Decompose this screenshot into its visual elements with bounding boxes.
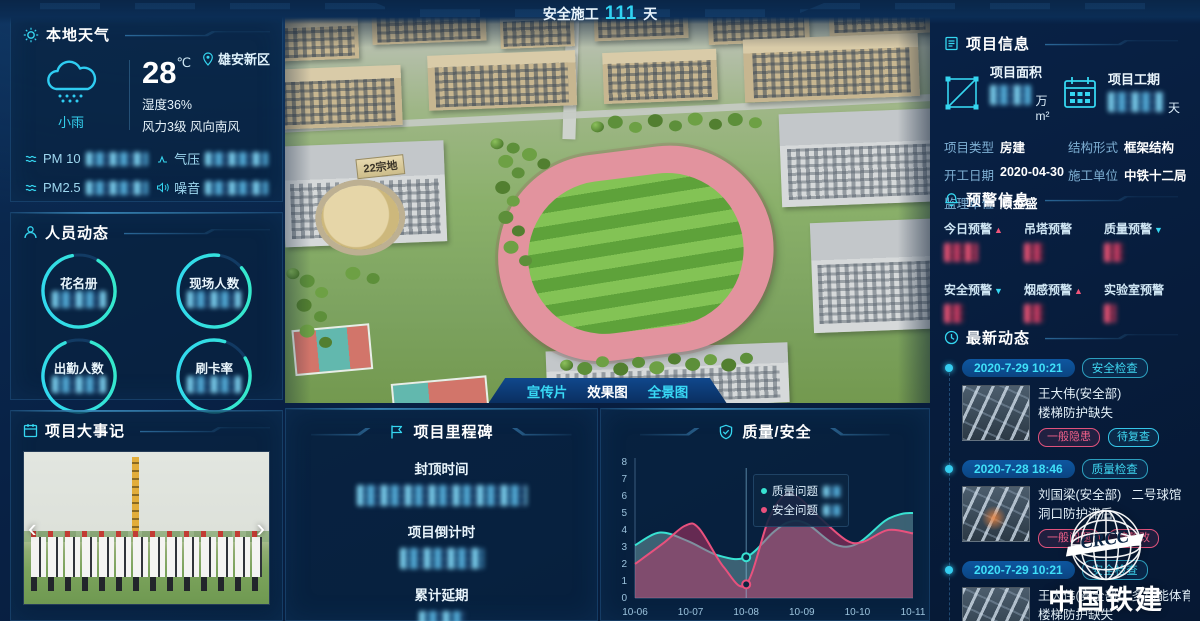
field-structure: 结构形式框架结构 xyxy=(1068,137,1187,156)
metric-label: 噪音 xyxy=(174,178,200,197)
svg-text:6: 6 xyxy=(621,491,627,502)
basketball-court xyxy=(391,375,490,403)
trend-down-icon: ▼ xyxy=(994,286,1003,296)
crcc-logo: CRCC 中国铁建 xyxy=(1022,503,1190,617)
milestones-panel: 项目里程碑 封顶时间 项目倒计时 累计延期 xyxy=(285,408,598,621)
events-title: 项目大事记 xyxy=(45,420,125,441)
legend-dot-quality xyxy=(761,488,767,494)
legend-quality: 质量问题 xyxy=(772,483,818,499)
warning-label: 实验室预警 xyxy=(1104,283,1164,297)
svg-text:7: 7 xyxy=(621,474,627,485)
site-3d-render: 22宗地 宣传片 效果图 全景图 xyxy=(285,8,930,403)
blurred-value xyxy=(400,548,484,569)
clock-icon xyxy=(944,330,959,345)
warning-label: 吊塔预警 xyxy=(1024,222,1072,236)
warning-label: 今日预警 xyxy=(944,222,992,236)
bell-icon xyxy=(944,192,959,207)
blurred-value xyxy=(86,152,149,166)
stat-project-area: 项目面积 万m² xyxy=(942,62,1060,123)
svg-text:10-10: 10-10 xyxy=(845,607,871,618)
trees xyxy=(490,138,503,149)
blurred-value xyxy=(823,505,841,516)
svg-text:2: 2 xyxy=(621,559,627,570)
shield-check-icon xyxy=(718,424,734,440)
project-info-panel: 项目信息 项目面积 万m² 项目工期 天 项目类型房建 结构形式框架结构 开工日… xyxy=(932,24,1190,174)
warning-label: 烟感预警 xyxy=(1024,283,1072,297)
safe-label: 安全施工 xyxy=(543,4,599,24)
project-info-title: 项目信息 xyxy=(966,33,1030,54)
milestone-delay: 累计延期 xyxy=(286,584,597,621)
building xyxy=(602,49,718,104)
personnel-panel: 人员动态 花名册 现场人数 出勤人数 刷卡率 xyxy=(10,212,283,400)
blurred-value xyxy=(357,485,527,506)
people-row xyxy=(31,537,261,577)
blurred-value xyxy=(1024,243,1044,262)
header-ornament xyxy=(640,428,710,436)
running-track xyxy=(486,133,786,373)
blurred-value xyxy=(187,291,241,308)
updates-title: 最新动态 xyxy=(966,327,1030,348)
pm-icon xyxy=(25,183,38,193)
warning-label: 安全预警 xyxy=(944,283,992,297)
ring-label: 出勤人数 xyxy=(33,358,125,377)
top-header-bar: 安全施工 111 天 xyxy=(0,0,1200,24)
safe-unit: 天 xyxy=(643,4,657,24)
inspection-photo xyxy=(962,385,1030,441)
issue-tag: 一般隐患 xyxy=(1038,428,1100,447)
header-divider xyxy=(140,427,270,434)
svg-text:10-07: 10-07 xyxy=(678,607,704,618)
globe-icon: CRCC xyxy=(1058,503,1154,587)
chart-tooltip: 质量问题 安全问题 xyxy=(753,474,849,527)
blurred-value xyxy=(990,85,1031,105)
metric-pm25: PM2.5 xyxy=(25,178,148,197)
stat-label: 项目工期 xyxy=(1108,69,1180,88)
svg-text:3: 3 xyxy=(621,542,627,553)
blurred-value xyxy=(1104,243,1124,262)
blurred-value xyxy=(205,181,268,195)
location-name: 雄安新区 xyxy=(218,49,270,68)
stat-ring-attendance: 出勤人数 xyxy=(33,336,125,417)
building xyxy=(285,65,402,129)
trend-down-icon: ▼ xyxy=(1154,225,1163,235)
header-ornament xyxy=(311,428,381,436)
weather-title: 本地天气 xyxy=(46,24,110,45)
svg-text:0: 0 xyxy=(621,593,627,604)
metric-noise: 噪音 xyxy=(156,178,268,197)
warnings-title: 预警信息 xyxy=(966,189,1030,210)
speaker-icon xyxy=(156,182,169,193)
temperature-value: 28 xyxy=(142,55,176,90)
sun-icon xyxy=(23,27,39,43)
milestone-label: 累计延期 xyxy=(286,584,597,604)
metric-pm10: PM 10 xyxy=(25,149,148,168)
svg-text:10-09: 10-09 xyxy=(789,607,815,618)
building xyxy=(427,50,577,111)
temperature-unit: ℃ xyxy=(176,55,191,70)
metric-label: 气压 xyxy=(174,149,200,168)
warning-quality: 质量预警▼ xyxy=(1104,220,1178,267)
safe-construction-counter: 安全施工 111 天 xyxy=(543,3,658,25)
document-icon xyxy=(944,36,959,51)
events-photo-carousel: ‹ › xyxy=(23,451,270,605)
sports-field xyxy=(520,163,753,342)
quality-safety-panel: 质量/安全 01234567810-0610-0710-0810-0910-10… xyxy=(600,408,930,621)
pm-icon xyxy=(25,154,38,164)
svg-text:1: 1 xyxy=(621,576,627,587)
gauge-icon xyxy=(156,153,169,164)
calendar-icon xyxy=(1060,73,1100,113)
entry-type-pill: 安全检查 xyxy=(1082,358,1148,378)
blurred-value xyxy=(1108,92,1164,112)
warning-label: 质量预警 xyxy=(1104,222,1152,236)
header-divider xyxy=(125,31,270,38)
basketball-court xyxy=(291,323,373,376)
stat-label: 项目面积 xyxy=(990,62,1060,81)
trees xyxy=(287,268,300,279)
svg-text:4: 4 xyxy=(621,525,627,536)
milestones-title: 项目里程碑 xyxy=(413,421,493,442)
legend-dot-safety xyxy=(761,507,767,513)
field-label: 项目类型 xyxy=(944,137,994,156)
status-tag: 待复查 xyxy=(1108,428,1159,447)
field-value: 框架结构 xyxy=(1124,137,1174,156)
warning-crane: 吊塔预警 xyxy=(1024,220,1098,267)
school-building xyxy=(779,108,930,207)
entry-issue: 楼梯防护缺失 xyxy=(1038,404,1159,423)
personnel-title: 人员动态 xyxy=(45,222,109,243)
header-divider xyxy=(124,229,270,236)
header-divider xyxy=(1045,334,1178,341)
svg-text:8: 8 xyxy=(621,457,627,468)
humidity: 湿度36% xyxy=(142,94,240,113)
field-value: 房建 xyxy=(1000,137,1025,156)
metric-label: PM 10 xyxy=(43,151,81,166)
blurred-value xyxy=(187,376,241,393)
entry-type-pill: 质量检查 xyxy=(1082,459,1148,479)
view-button-promo[interactable]: 宣传片 xyxy=(527,381,568,401)
view-button-panorama[interactable]: 全景图 xyxy=(648,381,689,401)
field-label: 结构形式 xyxy=(1068,137,1118,156)
header-divider xyxy=(1045,40,1178,47)
quality-chart: 01234567810-0610-0710-0810-0910-1010-11 … xyxy=(601,448,929,621)
svg-text:5: 5 xyxy=(621,508,627,519)
divider xyxy=(129,60,130,130)
header-divider xyxy=(1045,196,1178,203)
stat-unit: 天 xyxy=(1168,99,1180,116)
quality-title: 质量/安全 xyxy=(742,421,811,442)
entry-time-pill: 2020-7-29 10:21 xyxy=(962,359,1075,377)
rain-cloud-icon xyxy=(40,59,102,105)
crane-in-photo xyxy=(132,457,139,542)
location-chip: 雄安新区 xyxy=(202,49,270,68)
header-ornament xyxy=(502,428,572,436)
calendar-icon xyxy=(23,423,38,438)
safe-days-value: 111 xyxy=(605,3,638,25)
group-photo xyxy=(24,452,269,604)
area-plot-icon xyxy=(942,73,982,113)
scene-view-switcher: 宣传片 效果图 全景图 xyxy=(489,378,727,403)
metric-pressure: 气压 xyxy=(156,149,268,168)
weather-condition: 小雨 xyxy=(25,112,117,131)
stat-unit: 万m² xyxy=(1035,92,1060,123)
ring-label: 刷卡率 xyxy=(168,358,260,377)
blurred-value xyxy=(52,291,106,308)
trend-up-icon: ▲ xyxy=(1074,286,1083,296)
view-button-render[interactable]: 效果图 xyxy=(587,381,628,401)
entry-person: 王大伟(安全部) xyxy=(1038,385,1121,404)
metric-label: PM2.5 xyxy=(43,180,81,195)
flag-icon xyxy=(389,424,405,440)
stat-project-duration: 项目工期 天 xyxy=(1060,62,1180,123)
svg-text:10-08: 10-08 xyxy=(733,607,759,618)
update-entry[interactable]: 2020-7-29 10:21 安全检查 王大伟(安全部) 楼梯防护缺失 一般隐… xyxy=(946,358,1190,459)
header-ornament xyxy=(820,428,890,436)
milestone-label: 项目倒计时 xyxy=(286,521,597,541)
blurred-value xyxy=(205,152,268,166)
svg-text:10-11: 10-11 xyxy=(901,607,926,618)
milestone-topping-time: 封顶时间 xyxy=(286,458,597,511)
stat-ring-onsite: 现场人数 xyxy=(168,251,260,332)
crcc-abbr: CRCC xyxy=(1079,526,1131,553)
ring-label: 花名册 xyxy=(33,273,125,292)
location-pin-icon xyxy=(202,52,214,66)
inspection-photo xyxy=(962,486,1030,542)
crcc-brand-name: 中国铁建 xyxy=(1022,578,1190,617)
weather-panel: 本地天气 雄安新区 小雨 28℃ 湿度36% 风力3级 风向南风 PM xyxy=(10,14,283,202)
stat-ring-roster: 花名册 xyxy=(33,251,125,332)
stat-ring-swipe-rate: 刷卡率 xyxy=(168,336,260,417)
carousel-next-arrow[interactable]: › xyxy=(256,515,265,541)
svg-text:10-06: 10-06 xyxy=(622,607,648,618)
ring-label: 现场人数 xyxy=(168,273,260,292)
blurred-value xyxy=(419,611,465,621)
warnings-panel: 预警信息 今日预警▲ 吊塔预警 质量预警▼ 安全预警▼ 烟感预警▲ 实验室预警 xyxy=(932,180,1190,314)
blurred-value xyxy=(86,181,149,195)
project-events-panel: 项目大事记 ‹ › xyxy=(10,410,283,621)
trend-up-icon: ▲ xyxy=(994,225,1003,235)
blurred-value xyxy=(823,486,841,497)
wind: 风力3级 风向南风 xyxy=(142,116,240,135)
trees xyxy=(560,359,573,370)
carousel-prev-arrow[interactable]: ‹ xyxy=(28,515,37,541)
warning-today: 今日预警▲ xyxy=(944,220,1018,267)
building xyxy=(743,33,920,103)
scene-model: 22宗地 xyxy=(285,8,930,403)
milestone-label: 封顶时间 xyxy=(286,458,597,478)
blurred-value xyxy=(944,243,978,262)
trees xyxy=(591,121,604,132)
blurred-value xyxy=(52,376,106,393)
school-building xyxy=(810,217,930,333)
legend-safety: 安全问题 xyxy=(772,502,818,518)
entry-time-pill: 2020-7-28 18:46 xyxy=(962,460,1075,478)
field-project-type: 项目类型房建 xyxy=(944,137,1064,156)
milestone-countdown: 项目倒计时 xyxy=(286,521,597,574)
inspection-photo xyxy=(962,587,1030,621)
person-icon xyxy=(23,225,38,240)
